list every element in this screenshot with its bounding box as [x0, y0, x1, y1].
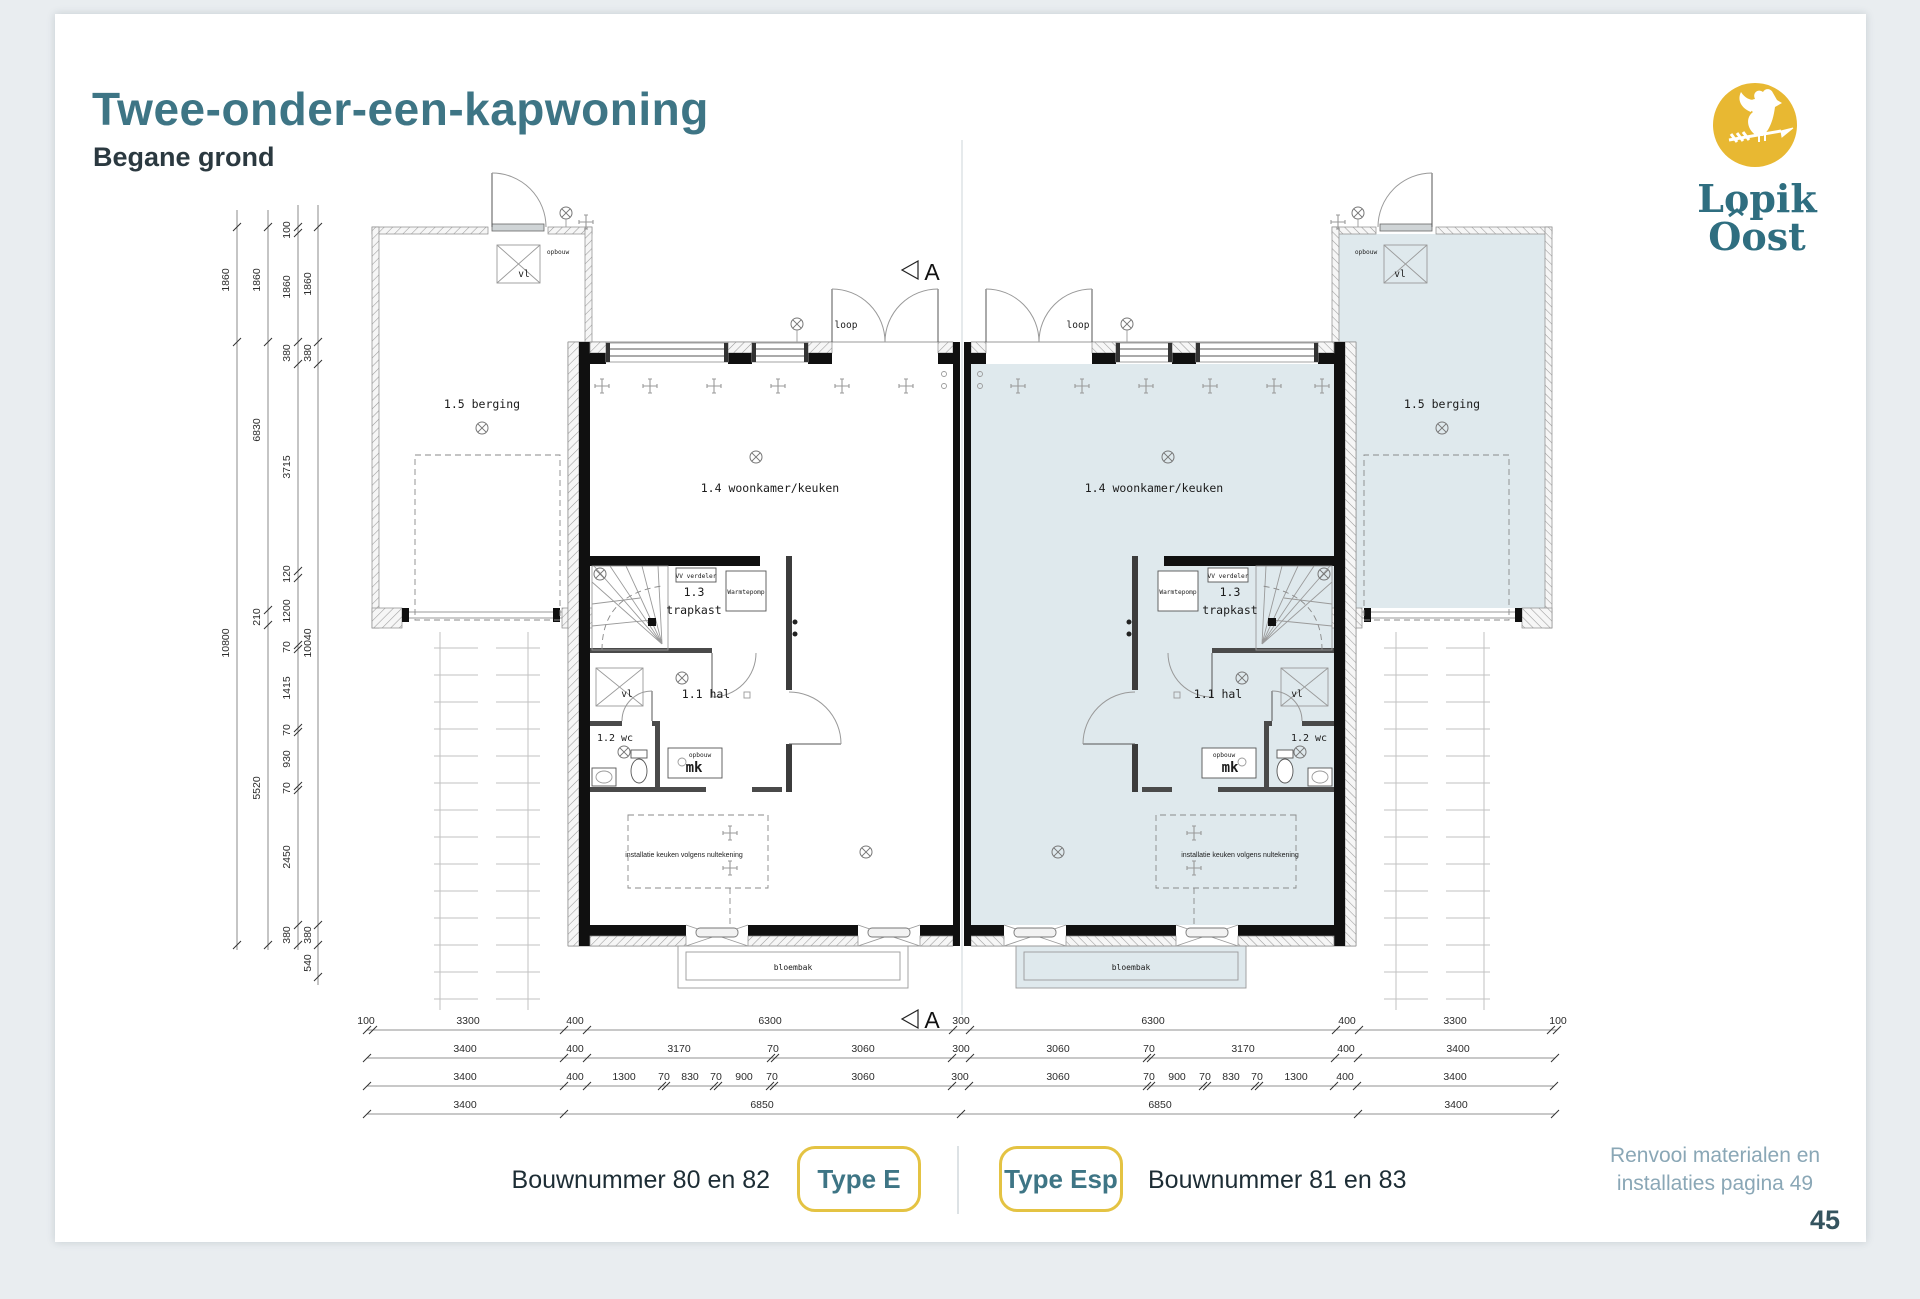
room-label-living-left: 1.4 woonkamer/keuken [701, 481, 839, 495]
dim: 70 [658, 1071, 670, 1083]
dim: 1200 [281, 599, 293, 623]
room-label-wc-left: 1.2 wc [597, 733, 633, 744]
dim: 3715 [281, 455, 293, 479]
room-label-stairno-right: 1.3 [1220, 585, 1241, 599]
dim: 1860 [281, 275, 293, 299]
dim: 70 [281, 641, 293, 653]
dim: 3060 [851, 1071, 875, 1083]
dim: 400 [566, 1043, 584, 1055]
brochure-page: Twee-onder-een-kapwoning Begane grond Lo… [0, 0, 1920, 1299]
label-vl-storage-left: vl [518, 269, 529, 280]
dim: 380 [281, 344, 293, 362]
room-label-hall-right: 1.1 hal [1194, 687, 1242, 701]
dim: 70 [1251, 1071, 1263, 1083]
dim: 6300 [758, 1015, 782, 1027]
dim: 1300 [612, 1071, 636, 1083]
badge-divider [957, 1146, 959, 1214]
dim: 3400 [453, 1071, 477, 1083]
dim: 1860 [302, 272, 314, 296]
section-letter-top: A [924, 259, 940, 285]
dim: 380 [302, 926, 314, 944]
label-mk-right: mk [1222, 760, 1239, 776]
unit-left-type-e [568, 289, 960, 988]
label-opbouw-storage-left: opbouw [547, 249, 570, 256]
label-heatpump-left: Warmtepomp [727, 589, 765, 596]
dim: 3400 [1446, 1043, 1470, 1055]
dimensions-left: 1860 10800 1860 6830 210 5520 100 1860 3… [220, 205, 322, 985]
badge-type-e: Type E [797, 1146, 921, 1212]
dim: 3400 [453, 1099, 477, 1111]
dim: 70 [710, 1071, 722, 1083]
dim: 400 [1337, 1043, 1355, 1055]
dim: 100 [1549, 1015, 1567, 1027]
dim: 2450 [281, 845, 293, 869]
dim: 400 [566, 1071, 584, 1083]
dim: 300 [952, 1043, 970, 1055]
dim: 6850 [750, 1099, 774, 1111]
dim: 100 [357, 1015, 375, 1027]
dim: 70 [1199, 1071, 1211, 1083]
label-planter-left: bloembak [774, 963, 813, 972]
label-kitchen-note-left: installatie keuken volgens nultekening [625, 852, 743, 859]
dim: 540 [302, 954, 314, 972]
dim: 930 [281, 750, 293, 768]
dim: 300 [951, 1071, 969, 1083]
label-walk-right: loop [1067, 320, 1090, 331]
dim: 380 [281, 926, 293, 944]
dim: 900 [1168, 1071, 1186, 1083]
room-label-storage-right: 1.5 berging [1404, 397, 1480, 411]
dim: 1860 [220, 268, 232, 292]
dim: 100 [281, 221, 293, 239]
page-number: 45 [1770, 1205, 1840, 1236]
dim: 3300 [1443, 1015, 1467, 1027]
dim: 6300 [1141, 1015, 1165, 1027]
label-vl-storage-right: vl [1394, 269, 1405, 280]
dim: 3300 [456, 1015, 480, 1027]
room-label-stair-left: trapkast [666, 603, 721, 617]
dim: 6850 [1148, 1099, 1172, 1111]
label-mk-left: mk [686, 760, 703, 776]
materials-note: Renvooi materialen en installaties pagin… [1590, 1142, 1840, 1198]
label-opbouw-storage-right: opbouw [1355, 249, 1378, 256]
dim: 3400 [1444, 1099, 1468, 1111]
room-label-living-right: 1.4 woonkamer/keuken [1085, 481, 1223, 495]
floorplan-drawing: A A 1.4 woonkamer/keuken 1.4 woonkamer/k… [0, 0, 1920, 1299]
dim: 5520 [251, 776, 263, 800]
room-label-stairno-left: 1.3 [684, 585, 705, 599]
dim: 380 [302, 344, 314, 362]
dim: 400 [1338, 1015, 1356, 1027]
dim: 70 [281, 782, 293, 794]
label-vv-right: VV verdeler [1208, 573, 1249, 580]
dim: 210 [251, 608, 263, 626]
dim: 300 [952, 1015, 970, 1027]
dim: 1860 [251, 268, 263, 292]
dim: 3400 [1443, 1071, 1467, 1083]
dim: 3060 [851, 1043, 875, 1055]
room-label-hall-left: 1.1 hal [682, 687, 730, 701]
dim: 120 [281, 565, 293, 583]
dim: 3060 [1046, 1071, 1070, 1083]
dim: 3170 [1231, 1043, 1255, 1055]
dimensions-bottom: 100 3300 400 6300 300 6300 400 3300 100 … [357, 1015, 1567, 1118]
section-marker-bottom: A [902, 1007, 940, 1033]
dim: 400 [1336, 1071, 1354, 1083]
section-letter-bottom: A [924, 1007, 940, 1033]
label-vl-hall-left: vl [621, 689, 632, 700]
caption-bouwnummer-left: Bouwnummer 80 en 82 [510, 1163, 770, 1197]
room-label-wc-right: 1.2 wc [1291, 733, 1327, 744]
section-marker-top: A [902, 259, 940, 285]
dim: 10040 [302, 628, 314, 657]
dim: 70 [766, 1071, 778, 1083]
label-heatpump-right: Warmtepomp [1159, 589, 1197, 596]
dim: 3400 [453, 1043, 477, 1055]
dim: 900 [735, 1071, 753, 1083]
dim: 1300 [1284, 1071, 1308, 1083]
badge-type-esp: Type Esp [999, 1146, 1123, 1212]
dim: 3060 [1046, 1043, 1070, 1055]
dim: 10800 [220, 628, 232, 657]
label-planter-right: bloembak [1112, 963, 1151, 972]
dim: 830 [681, 1071, 699, 1083]
dim: 400 [566, 1015, 584, 1027]
room-label-storage-left: 1.5 berging [444, 397, 520, 411]
dim: 70 [1143, 1043, 1155, 1055]
dim: 70 [767, 1043, 779, 1055]
room-label-stair-right: trapkast [1202, 603, 1257, 617]
label-opbouw-mk-right: opbouw [1213, 752, 1236, 759]
materials-note-line1: Renvooi materialen en [1590, 1142, 1840, 1170]
label-vv-left: VV verdeler [676, 573, 717, 580]
materials-note-line2: installaties pagina 49 [1590, 1170, 1840, 1198]
dim: 6830 [251, 418, 263, 442]
dim: 70 [281, 724, 293, 736]
label-walk-left: loop [835, 320, 858, 331]
dim: 830 [1222, 1071, 1240, 1083]
label-kitchen-note-right: installatie keuken volgens nultekening [1181, 852, 1299, 859]
label-opbouw-mk-left: opbouw [689, 752, 712, 759]
caption-bouwnummer-right: Bouwnummer 81 en 83 [1148, 1163, 1408, 1197]
dim: 70 [1143, 1071, 1155, 1083]
dim: 1415 [281, 676, 293, 700]
dim: 3170 [667, 1043, 691, 1055]
label-vl-hall-right: vl [1291, 689, 1302, 700]
plan-canvas: A A 1.4 woonkamer/keuken 1.4 woonkamer/k… [220, 140, 1567, 1118]
